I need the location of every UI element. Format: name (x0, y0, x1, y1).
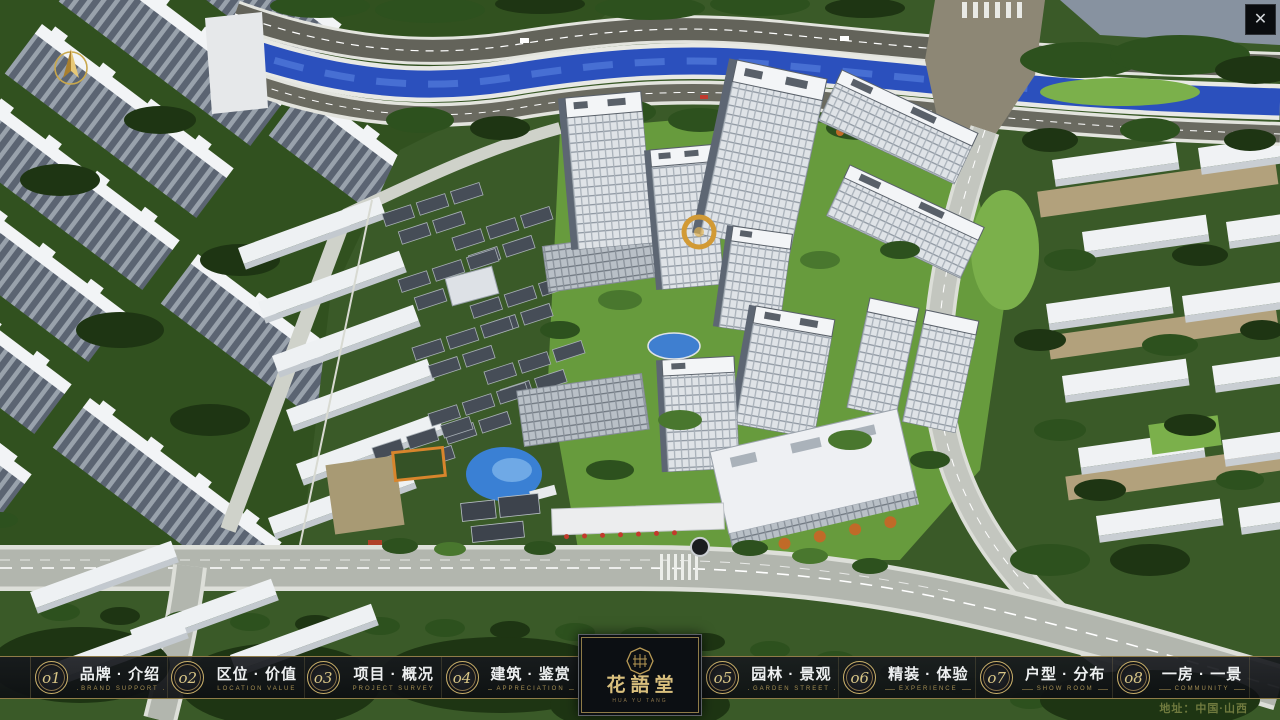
nav-badge-7: o7 (980, 661, 1013, 694)
nav-item-garden[interactable]: o5 园林 · 景观 GARDEN STREET (703, 657, 840, 698)
nav-label-en: BRAND SUPPORT (77, 686, 163, 692)
project-address: 地址：中国·山西 (1159, 700, 1248, 716)
nav-badge-2: o2 (171, 661, 204, 694)
nav-item-project[interactable]: o3 项目 · 概况 PROJECT SURVEY (305, 657, 442, 698)
logo-title: 花語堂 (601, 676, 678, 695)
nav-label-zh: 品牌 · 介绍 (80, 663, 160, 684)
presentation-viewport[interactable]: ✕ o1 品牌 · 介绍 BRAND SUPPORT o2 区位 · 价值 LO… (0, 0, 1280, 720)
nav-label-en: LOCATION VALUE (213, 686, 300, 692)
nav-item-interior[interactable]: o6 精装 · 体验 EXPERIENCE (839, 657, 976, 698)
bridge (205, 12, 268, 114)
nav-label-zh: 项目 · 概况 (354, 663, 434, 684)
nav-badge-6: o6 (843, 661, 876, 694)
nav-label-en: EXPERIENCE (885, 686, 971, 692)
nav-label-en: PROJECT SURVEY (349, 686, 439, 692)
nav-badge-4: o4 (446, 661, 479, 694)
nav-label-zh: 区位 · 价值 (217, 663, 297, 684)
nav-label-en: SHOW ROOM (1022, 686, 1108, 692)
nav-label-en: APPRECIATION (488, 686, 574, 692)
nav-label-zh: 园林 · 景观 (751, 663, 831, 684)
logo-subtitle: HUA YU TANG (612, 698, 667, 704)
nav-label-en: COMMUNITY (1159, 686, 1245, 692)
nav-label-zh: 一房 · 一景 (1162, 663, 1242, 684)
nav-label-zh: 户型 · 分布 (1025, 663, 1105, 684)
nav-badge-3: o3 (307, 661, 340, 694)
nav-item-brand[interactable]: o1 品牌 · 介绍 BRAND SUPPORT (31, 657, 168, 698)
nav-badge-5: o5 (706, 661, 739, 694)
nav-item-architecture[interactable]: o4 建筑 · 鉴赏 APPRECIATION (442, 657, 579, 698)
nav-label-en: GARDEN STREET (748, 686, 834, 692)
aerial-render (0, 0, 1280, 720)
nav-label-zh: 精装 · 体验 (888, 663, 968, 684)
nav-item-views[interactable]: o8 一房 · 一景 COMMUNITY (1113, 657, 1250, 698)
nav-item-floorplan[interactable]: o7 户型 · 分布 SHOW ROOM (976, 657, 1113, 698)
close-button[interactable]: ✕ (1245, 4, 1276, 35)
nav-badge-8: o8 (1117, 661, 1150, 694)
seal-emblem-icon (626, 647, 654, 675)
compass-icon (50, 42, 92, 95)
nav-item-location[interactable]: o2 区位 · 价值 LOCATION VALUE (168, 657, 305, 698)
project-logo[interactable]: 花語堂 HUA YU TANG (578, 634, 702, 716)
nav-label-zh: 建筑 · 鉴赏 (490, 663, 570, 684)
nav-badge-1: o1 (35, 661, 68, 694)
